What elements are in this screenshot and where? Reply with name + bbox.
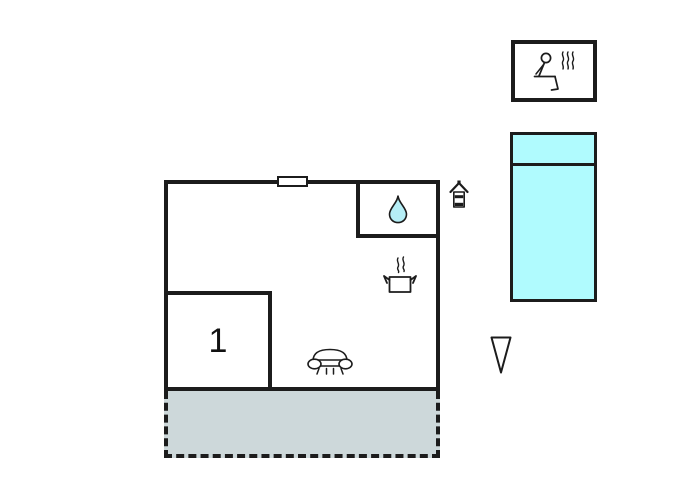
cooking-pot-icon bbox=[383, 255, 417, 295]
main-room-outline: 1 bbox=[164, 180, 440, 391]
bathroom-partition bbox=[356, 184, 436, 238]
pool-step-divider bbox=[513, 163, 594, 166]
room-number-label: 1 bbox=[209, 324, 228, 358]
terrace-area bbox=[164, 391, 440, 458]
floorplan-canvas: 1 bbox=[0, 0, 700, 500]
triangle-pointer-icon bbox=[490, 336, 512, 374]
sauna-box bbox=[511, 40, 597, 102]
swimming-pool bbox=[510, 132, 597, 302]
sauna-person-icon bbox=[525, 48, 583, 94]
water-heater-icon bbox=[449, 180, 469, 209]
room-1-partition: 1 bbox=[168, 291, 272, 387]
window-gap-marker bbox=[277, 176, 308, 187]
sofa-icon bbox=[306, 345, 354, 375]
water-drop-icon bbox=[387, 194, 409, 224]
